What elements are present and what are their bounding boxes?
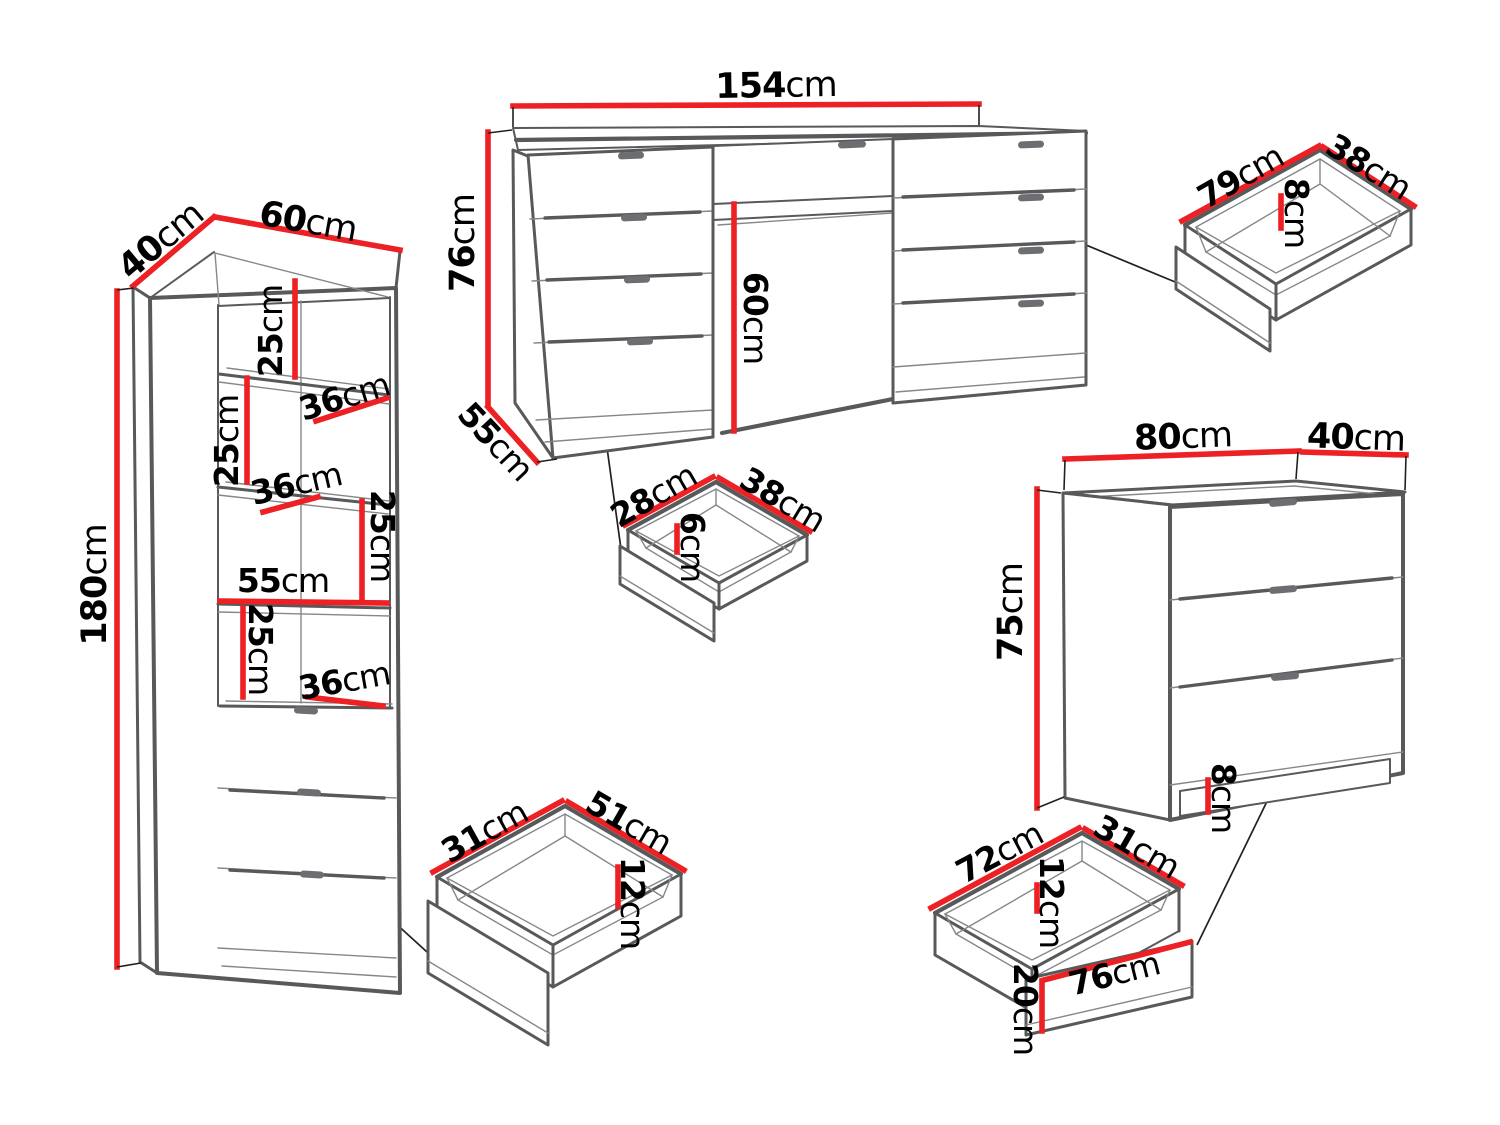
dim-label-desk-height: 76cm (443, 194, 483, 292)
drawer-handle (1018, 299, 1044, 307)
dim-label-small-drawer-height: 6cm (674, 512, 713, 582)
dim-label-cabinet-interior-width: 55cm (237, 561, 329, 600)
drawer-handle (621, 213, 647, 221)
dim-label-chest-drawer-height: 12cm (1033, 856, 1072, 948)
drawer-handle (624, 275, 650, 283)
drawer-handle (297, 788, 321, 796)
dim-label-chest-width: 80cm (1133, 415, 1232, 458)
dim-label-cabinet-gap4: 25cm (242, 603, 281, 695)
drawer-handle (300, 870, 324, 878)
desk-drawer-tray: 79cm 38cm 8cm (1176, 125, 1418, 351)
dim-label-cabinet-drawer-height: 12cm (614, 857, 653, 949)
drawer-handle (618, 151, 644, 159)
chest-of-drawers: 80cm 40cm 75cm 8cm (991, 415, 1406, 833)
furniture-dimensions-diagram: 40cm 60cm 180cm 25cm 36cm 25cm 36cm 25cm… (0, 0, 1500, 1125)
chest-drawer-tray: 72cm 31cm 12cm 20cm 76cm (931, 806, 1192, 1055)
dim-label-chest-drawer-front-height: 20cm (1007, 963, 1046, 1055)
drawer-handle (838, 140, 866, 148)
drawer-handle (1018, 140, 1044, 148)
dim-label-chest-depth: 40cm (1306, 416, 1405, 459)
dim-label-cabinet-gap1: 25cm (251, 285, 290, 377)
diagram-canvas: 40cm 60cm 180cm 25cm 36cm 25cm 36cm 25cm… (0, 0, 1500, 1125)
desk: 154cm 76cm 55cm 60cm (443, 65, 1086, 488)
small-drawer-tray: 28cm 38cm 6cm (603, 455, 832, 641)
dim-label-cabinet-gap3: 25cm (364, 490, 403, 582)
dim-label-cabinet-gap2: 25cm (207, 395, 246, 487)
drawer-handle (294, 706, 318, 714)
desk-structure (513, 126, 1086, 458)
drawer-handle (627, 337, 653, 345)
tall-cabinet: 40cm 60cm 180cm 25cm 36cm 25cm 36cm 25cm… (75, 194, 403, 993)
dim-label-desk-drawer-height: 8cm (1278, 178, 1317, 248)
dim-label-chest-height: 75cm (991, 563, 1031, 661)
drawer-handle (1018, 193, 1044, 201)
dim-label-desk-width: 154cm (715, 65, 837, 107)
drawer-handle (1018, 246, 1044, 254)
dim-label-desk-knee-clearance: 60cm (737, 272, 776, 364)
cabinet-drawer-tray: 31cm 51cm 12cm (428, 782, 684, 1045)
dim-label-chest-plinth: 8cm (1205, 763, 1244, 833)
dim-label-cabinet-height: 180cm (75, 524, 115, 645)
